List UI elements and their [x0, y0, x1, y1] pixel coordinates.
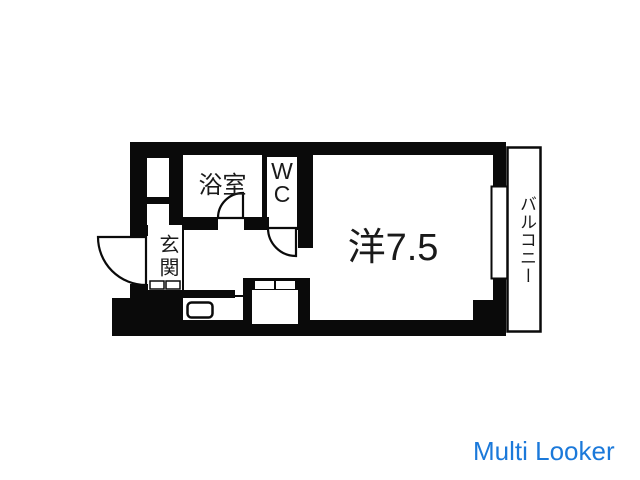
stove-unit	[276, 281, 295, 289]
wall-left-upper	[130, 142, 148, 236]
closet-upper-area	[147, 158, 169, 197]
main-room-label: 洋7.5	[303, 216, 483, 271]
wc-label: WC	[266, 160, 298, 207]
closet-lower-area	[147, 204, 169, 225]
window	[492, 187, 508, 279]
entrance-step-divider	[182, 230, 184, 290]
wc-door-arc	[268, 228, 296, 256]
wall-nook-strip	[183, 290, 235, 298]
watermark-text: Multi Looker	[473, 436, 615, 467]
floor-plan: 浴室 WC 玄関 洋7.5 バルコニー Multi Looker	[0, 0, 640, 480]
entrance-step-mark-right	[166, 281, 180, 289]
entrance-door-arc	[98, 237, 146, 285]
kitchen-counter	[252, 290, 298, 324]
wall-pillar	[473, 300, 506, 336]
entrance-step-mark-left	[150, 281, 164, 289]
bathroom-label: 浴室	[183, 165, 262, 200]
wall-right-upper	[493, 155, 506, 188]
washing-machine-pad	[188, 303, 213, 318]
sink-unit	[255, 281, 274, 289]
entrance-label: 玄関	[153, 234, 182, 280]
counter-edge-line	[230, 295, 243, 297]
balcony-label: バルコニー	[514, 195, 539, 285]
hall-area	[184, 230, 243, 290]
